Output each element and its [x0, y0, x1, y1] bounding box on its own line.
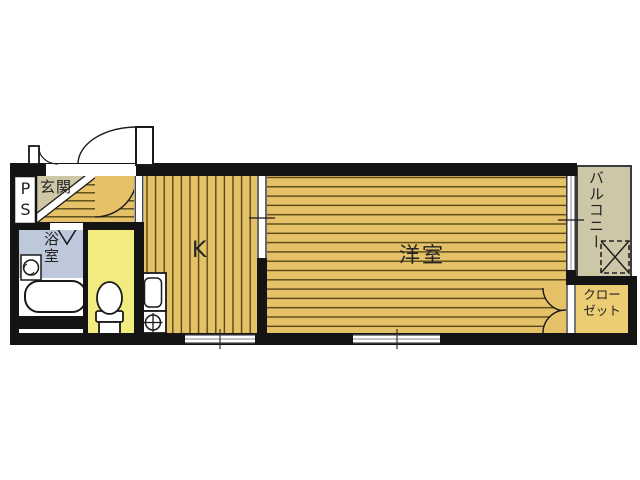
wall-bath-bottom [16, 316, 86, 329]
toilet-fixture [96, 282, 123, 334]
wall-toilet-right [134, 222, 144, 333]
closet-label: クロー ゼット [575, 287, 629, 320]
floor-plan-canvas: 玄関 PS 浴室 K 洋室 バルコニー クロー ゼット [0, 0, 640, 480]
entrance-door-arc [78, 127, 137, 164]
bathroom-label: 浴室 [43, 231, 58, 265]
bathtub [25, 281, 86, 312]
wall-bottom [10, 333, 637, 345]
balcony-label: バルコニー [588, 170, 603, 250]
wall-balcony-closet [566, 276, 637, 285]
kitchen-sink [145, 278, 162, 307]
toilet-bowl [97, 282, 122, 314]
entrance-opening [46, 164, 136, 176]
entrance-door-leaf[interactable] [136, 127, 153, 165]
wall-partition-lower [257, 258, 267, 333]
meter-box-door-leaf [29, 146, 39, 164]
wall-right [628, 281, 637, 345]
bath-bottom-gap [19, 329, 83, 333]
entrance-label: 玄関 [40, 176, 72, 197]
toilet-tank [99, 322, 120, 334]
bathroom-doorway [50, 223, 88, 230]
meter-box-door-arc [39, 148, 58, 164]
kitchen-label: K [192, 238, 206, 263]
floor-plan-drawing [0, 0, 640, 480]
pipe-space-label: PS [17, 179, 33, 221]
western-room-label: 洋室 [399, 239, 445, 269]
